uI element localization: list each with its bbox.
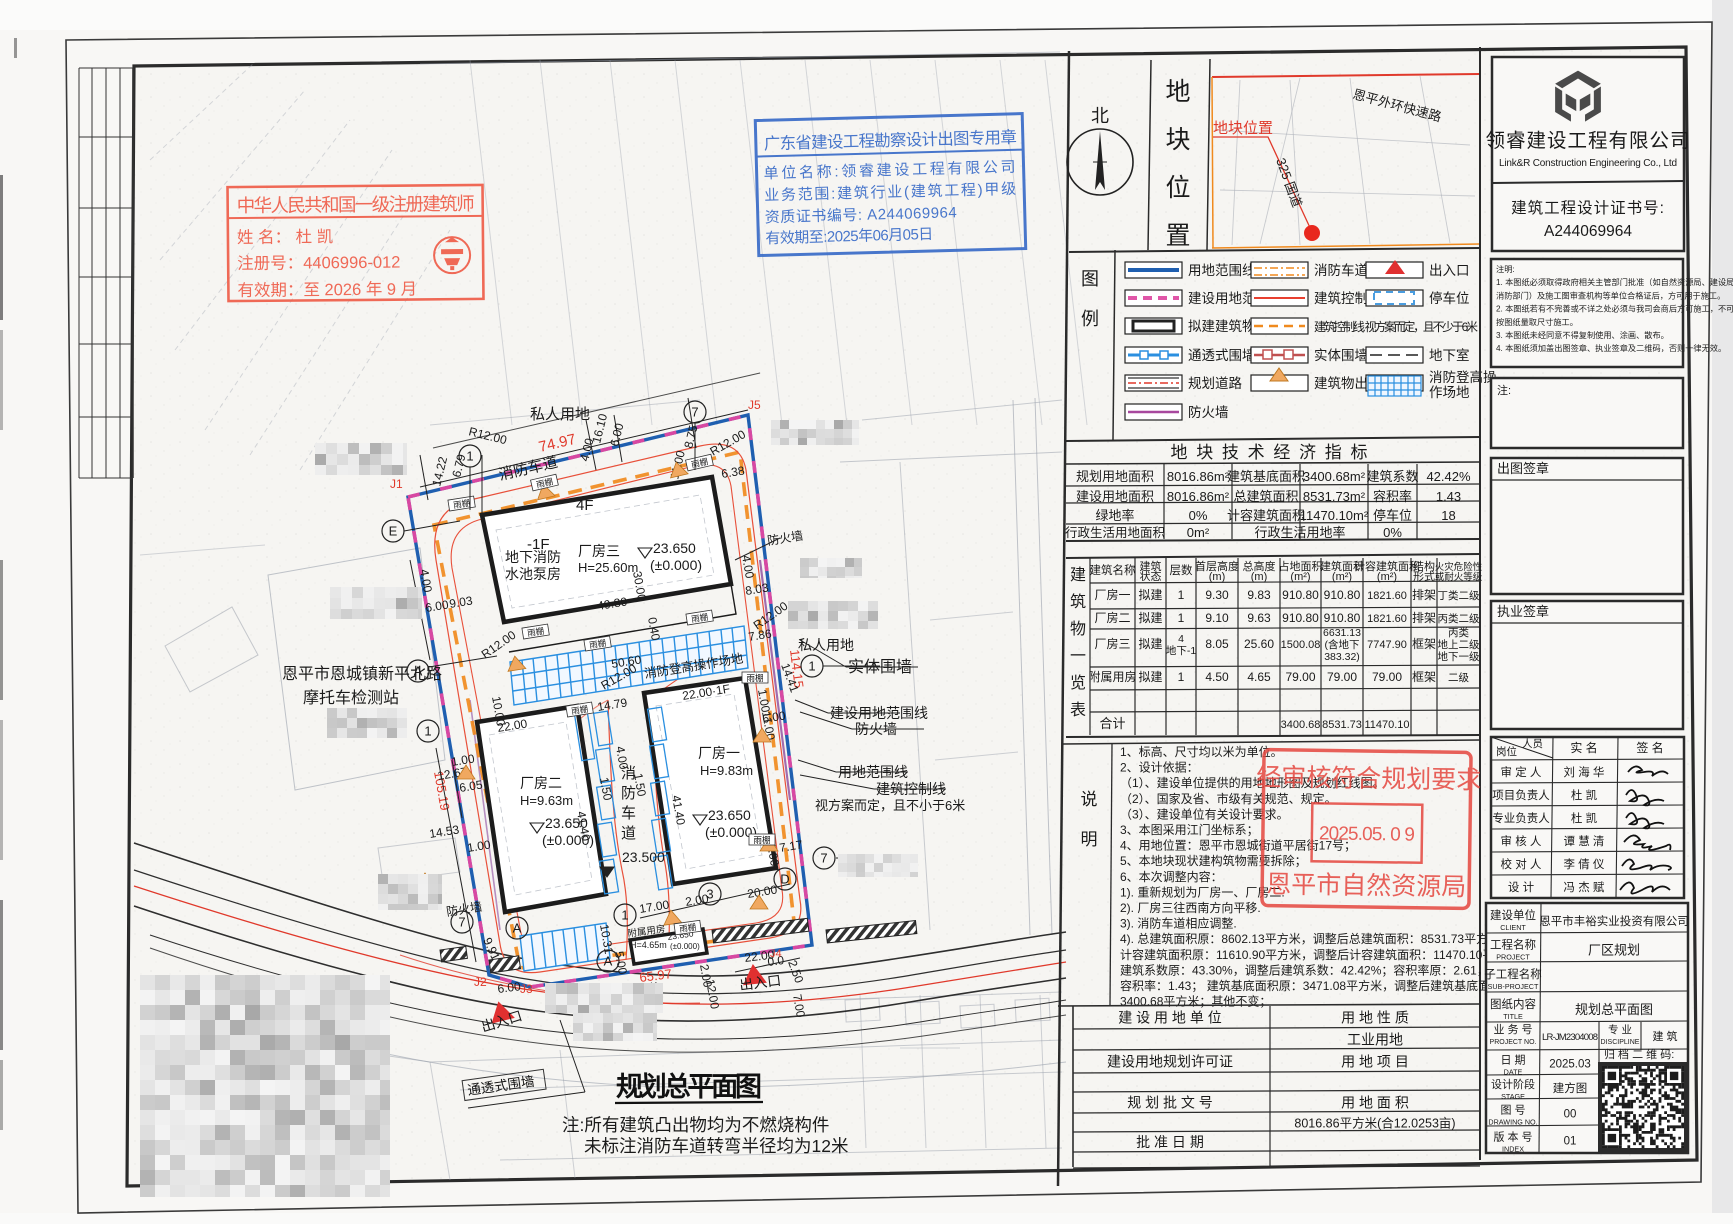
svg-text:总建筑面积: 总建筑面积 (1233, 489, 1298, 504)
svg-text:实 名: 实 名 (1570, 740, 1597, 755)
svg-text:7747.90: 7747.90 (1367, 639, 1407, 651)
svg-text:版 本 号: 版 本 号 (1493, 1130, 1532, 1144)
svg-text:地块位置: 地块位置 (1213, 120, 1273, 137)
svg-text:专业负责人: 专业负责人 (1492, 811, 1550, 825)
svg-text:6、本次调整内容：: 6、本次调整内容： (1120, 869, 1223, 884)
svg-text:7: 7 (820, 851, 827, 866)
svg-text:执业签章: 执业签章 (1497, 604, 1549, 619)
svg-text:5、本地块现状建构筑物需要拆除；: 5、本地块现状建构筑物需要拆除； (1120, 853, 1307, 868)
svg-text:J2: J2 (474, 975, 487, 989)
svg-text:工业用地: 工业用地 (1347, 1032, 1403, 1048)
svg-text:7: 7 (458, 915, 465, 930)
svg-text:摩托车检测站: 摩托车检测站 (303, 689, 399, 707)
svg-text:0%: 0% (1383, 525, 1402, 540)
svg-text:PROJECT NO.: PROJECT NO. (1490, 1039, 1537, 1046)
svg-text:79.00: 79.00 (1285, 670, 1315, 684)
svg-text:A: A (414, 664, 423, 679)
svg-text:383.32): 383.32) (1324, 651, 1360, 663)
svg-text:说: 说 (1081, 790, 1098, 809)
svg-text:79.00: 79.00 (1372, 670, 1402, 684)
svg-text:DISCIPLINE: DISCIPLINE (1601, 1039, 1640, 1046)
svg-text:状态: 状态 (1140, 569, 1162, 583)
svg-text:9.83: 9.83 (1247, 588, 1271, 602)
svg-text:框架: 框架 (1412, 670, 1436, 684)
svg-text:18: 18 (1441, 508, 1455, 523)
svg-text:3: 3 (706, 887, 713, 902)
svg-text:4). 总建筑面积原：8602.13平方米，调整后总建筑面积: 4). 总建筑面积原：8602.13平方米，调整后总建筑面积：8531.73平方… (1120, 931, 1512, 946)
svg-text:作场地: 作场地 (1429, 385, 1470, 400)
svg-text:出图签章: 出图签章 (1497, 461, 1549, 476)
svg-text:冯 杰 赋: 冯 杰 赋 (1564, 881, 1605, 894)
svg-text:8016.86m²: 8016.86m² (1167, 489, 1230, 504)
svg-text:建筑系数原：43.30%，调整后建筑系数：42.42%；容积: 建筑系数原：43.30%，调整后建筑系数：42.42%；容积率原：2.61，调整… (1120, 962, 1525, 977)
svg-text:规划总平面图: 规划总平面图 (616, 1072, 762, 1102)
svg-text:合计: 合计 (1099, 716, 1125, 731)
svg-text:校 对 人: 校 对 人 (1501, 857, 1542, 871)
svg-text:42.42%: 42.42% (1426, 469, 1471, 484)
svg-text:H=4.65m: H=4.65m (630, 940, 667, 950)
svg-text:实体围墙: 实体围墙 (1314, 348, 1368, 363)
svg-text:框架: 框架 (1412, 637, 1436, 651)
svg-text:地: 地 (1165, 78, 1190, 106)
svg-text:23.650: 23.650 (708, 807, 751, 823)
svg-text:排架: 排架 (1412, 611, 1436, 625)
svg-text:厂房二: 厂房二 (1094, 610, 1130, 625)
svg-text:览: 览 (1070, 674, 1086, 692)
svg-text:计容建筑面积原：11610.90平方米，调整后计容建筑面积：: 计容建筑面积原：11610.90平方米，调整后计容建筑面积：11470.10平方… (1120, 947, 1530, 962)
svg-text:A: A (513, 921, 522, 936)
svg-text:归 档 二 维 码:: 归 档 二 维 码: (1604, 1047, 1674, 1061)
svg-text:9.30: 9.30 (1205, 588, 1229, 602)
svg-text:建 筑: 建 筑 (1652, 1029, 1677, 1043)
svg-text:地 块 技 术 经 济 指 标: 地 块 技 术 经 济 指 标 (1170, 443, 1369, 462)
svg-text:建: 建 (1070, 566, 1086, 584)
svg-text:规划用地面积: 规划用地面积 (1076, 469, 1154, 484)
svg-text:8531.73m²: 8531.73m² (1303, 489, 1366, 504)
svg-text:项目负责人: 项目负责人 (1492, 788, 1550, 802)
svg-text:明: 明 (1081, 830, 1098, 849)
svg-text:建设用地面积: 建设用地面积 (1076, 489, 1154, 504)
svg-text:(±0.000): (±0.000) (542, 832, 594, 848)
svg-text:J3: J3 (520, 982, 533, 996)
svg-text:形式: 形式 (1413, 570, 1435, 583)
svg-text:谭 慧 清: 谭 慧 清 (1564, 834, 1605, 848)
svg-text:PROJECT: PROJECT (1496, 953, 1530, 962)
svg-text:4. 本图纸须加盖出图签章、执业签章及二维码，否则一律无效。: 4. 本图纸须加盖出图签章、执业签章及二维码，否则一律无效。 (1496, 343, 1726, 353)
svg-text:专 业: 专 业 (1608, 1023, 1632, 1036)
svg-text:工程名称: 工程名称 (1490, 938, 1536, 952)
svg-text:3. 本图纸未经同意不得复制使用、涂画、散布。: 3. 本图纸未经同意不得复制使用、涂画、散布。 (1496, 330, 1669, 340)
svg-text:910.80: 910.80 (1324, 611, 1361, 625)
svg-text:岗位: 岗位 (1496, 745, 1518, 758)
svg-text:停车位: 停车位 (1373, 508, 1412, 523)
svg-text:TITLE: TITLE (1503, 1012, 1523, 1021)
svg-text:1.43: 1.43 (1436, 489, 1461, 504)
svg-text:经审核符合规划要求: 经审核符合规划要求 (1256, 763, 1481, 794)
svg-text:厂房三: 厂房三 (1094, 636, 1130, 651)
svg-text:8.05: 8.05 (1205, 637, 1229, 651)
svg-text:恩平市丰裕实业投资有限公司: 恩平市丰裕实业投资有限公司 (1539, 914, 1689, 928)
svg-text:1. 本图纸必须取得政府相关主管部门批准（如自然资源局、建设: 1. 本图纸必须取得政府相关主管部门批准（如自然资源局、建设局 (1496, 277, 1733, 287)
svg-text:SUB-PROJECT: SUB-PROJECT (1488, 982, 1539, 991)
svg-text:2、设计依据：: 2、设计依据： (1120, 760, 1199, 775)
svg-text:注:: 注: (1497, 383, 1511, 397)
svg-text:1: 1 (424, 724, 431, 739)
svg-text:视方案而定，且不小于6米: 视方案而定，且不小于6米 (815, 798, 965, 813)
svg-text:(±0.000): (±0.000) (670, 942, 700, 951)
svg-text:子工程名称: 子工程名称 (1484, 967, 1542, 981)
svg-text:丙类: 丙类 (1448, 626, 1470, 639)
svg-text:车: 车 (621, 805, 636, 822)
svg-text:审 定 人: 审 定 人 (1501, 765, 1542, 779)
svg-text:(m): (m) (1209, 571, 1226, 583)
svg-text:1821.60: 1821.60 (1367, 590, 1407, 602)
svg-text:建筑基底面积: 建筑基底面积 (1227, 469, 1305, 484)
svg-text:(含地下: (含地下 (1325, 638, 1360, 651)
svg-text:行政生活用地率: 行政生活用地率 (1254, 525, 1345, 540)
svg-text:图: 图 (1081, 269, 1099, 289)
svg-text:拟建: 拟建 (1138, 670, 1162, 684)
svg-text:消防部门）及施工图审查机构等单位合格证后，方可用于施工。: 消防部门）及施工图审查机构等单位合格证后，方可用于施工。 (1496, 290, 1725, 300)
svg-text:4.50: 4.50 (1205, 670, 1229, 684)
svg-text:A244069964: A244069964 (1544, 223, 1632, 240)
svg-text:2). 厂房三往西南方向平移.: 2). 厂房三往西南方向平移. (1120, 900, 1261, 915)
svg-text:3400.68: 3400.68 (1281, 719, 1321, 731)
svg-text:地下一级: 地下一级 (1438, 650, 1480, 663)
svg-text:防: 防 (621, 785, 636, 802)
svg-text:910.80: 910.80 (1282, 611, 1319, 625)
svg-text:消防车道: 消防车道 (1314, 262, 1368, 278)
svg-text:业 务 号: 业 务 号 (1493, 1023, 1532, 1036)
svg-text:23.650: 23.650 (545, 815, 588, 831)
svg-text:日 期: 日 期 (1500, 1054, 1525, 1067)
svg-text:建筑控制线. 视方案而定，且不少于6米: 建筑控制线. 视方案而定，且不少于6米 (1314, 319, 1478, 334)
svg-text:H=25.60m: H=25.60m (578, 560, 638, 575)
svg-text:01: 01 (1564, 1136, 1577, 1148)
svg-text:00: 00 (1564, 1109, 1577, 1121)
svg-text:未标注消防车道转弯半径均为12米: 未标注消防车道转弯半径均为12米 (584, 1136, 848, 1156)
svg-text:3). 消防车道相应调整.: 3). 消防车道相应调整. (1120, 916, 1237, 931)
svg-text:一: 一 (1070, 648, 1086, 665)
svg-text:(m): (m) (1251, 571, 1268, 583)
svg-text:4: 4 (1178, 633, 1184, 645)
svg-text:地下室: 地下室 (1429, 347, 1470, 363)
svg-text:79.00: 79.00 (1327, 670, 1357, 684)
svg-text:2025.03: 2025.03 (1549, 1059, 1591, 1071)
svg-text:雨棚: 雨棚 (753, 835, 770, 845)
svg-text:拟建: 拟建 (1138, 611, 1162, 625)
svg-text:丙类二级: 丙类二级 (1438, 612, 1480, 625)
svg-text:地上二级: 地上二级 (1438, 638, 1480, 651)
svg-text:行政生活用地面积: 行政生活用地面积 (1065, 526, 1165, 540)
svg-text:层数: 层数 (1170, 563, 1193, 577)
svg-text:图纸内容: 图纸内容 (1490, 997, 1536, 1011)
svg-text:规划道路: 规划道路 (1188, 376, 1242, 391)
svg-text:1: 1 (808, 659, 815, 674)
svg-text:消: 消 (621, 765, 636, 782)
svg-text:容积率：1.43； 建筑基底面积原：3471.08平方米，: 容积率：1.43； 建筑基底面积原：3471.08平方米，调整后建筑基底面积： (1120, 978, 1514, 993)
svg-text:1821.60: 1821.60 (1367, 613, 1407, 625)
svg-text:按图纸量取尺寸施工。: 按图纸量取尺寸施工。 (1496, 317, 1578, 327)
svg-text:拟建: 拟建 (1138, 637, 1162, 651)
svg-text:1、标高、尺寸均以米为单位。: 1、标高、尺寸均以米为单位。 (1120, 744, 1283, 759)
svg-text:雨棚: 雨棚 (746, 673, 763, 683)
svg-text:计容建筑面积: 计容建筑面积 (1227, 508, 1305, 523)
svg-text:建筑名称: 建筑名称 (1090, 563, 1136, 577)
svg-text:人员: 人员 (1522, 738, 1543, 750)
svg-text:DATE: DATE (1504, 1068, 1523, 1077)
svg-text:物: 物 (1070, 620, 1086, 638)
svg-text:规 划 批 文 号: 规 划 批 文 号 (1127, 1095, 1213, 1111)
svg-text:A: A (604, 954, 613, 969)
svg-text:块: 块 (1165, 126, 1190, 154)
svg-text:11470.10m²: 11470.10m² (1300, 508, 1369, 523)
svg-text:0%: 0% (1189, 508, 1208, 523)
svg-text:1: 1 (621, 908, 628, 923)
svg-text:910.80: 910.80 (1324, 588, 1361, 602)
svg-text:11470.10: 11470.10 (1364, 719, 1409, 731)
svg-text:表: 表 (1070, 701, 1086, 719)
svg-text:厂房三: 厂房三 (578, 543, 620, 559)
svg-text:1500.08: 1500.08 (1281, 639, 1321, 651)
svg-text:地下-1: 地下-1 (1166, 644, 1196, 657)
svg-text:9.63: 9.63 (1247, 611, 1271, 625)
svg-text:私人用地: 私人用地 (530, 406, 590, 423)
svg-text:3、本图采用江门坐标系；: 3、本图采用江门坐标系； (1120, 822, 1259, 837)
svg-text:(m²): (m²) (1290, 571, 1310, 583)
svg-text:2025.05. 0 9: 2025.05. 0 9 (1319, 823, 1415, 845)
svg-text:23.650: 23.650 (653, 540, 696, 556)
svg-text:Link&R Construction Engineerin: Link&R Construction Engineering Co., Ltd (1499, 158, 1677, 169)
svg-text:用地范围线: 用地范围线 (1188, 263, 1256, 278)
svg-text:建设单位: 建设单位 (1490, 908, 1536, 922)
svg-text:李 倩 仪: 李 倩 仪 (1564, 857, 1605, 871)
svg-text:拟建: 拟建 (1138, 588, 1162, 602)
svg-text:丁类二级: 丁类二级 (1438, 589, 1480, 602)
svg-text:6.00: 6.00 (497, 979, 522, 996)
svg-text:4.65: 4.65 (1247, 670, 1271, 684)
svg-text:(±0.000): (±0.000) (650, 557, 702, 573)
svg-text:J1: J1 (390, 477, 403, 491)
svg-text:建 设 用 地 单 位: 建 设 用 地 单 位 (1118, 1010, 1221, 1026)
svg-text:通透式围墙: 通透式围墙 (1188, 348, 1256, 363)
svg-text:0m²: 0m² (1187, 525, 1210, 540)
svg-text:有效期：至 2026 年 9 月: 有效期：至 2026 年 9 月 (237, 279, 417, 300)
svg-text:用 地 性 质: 用 地 性 质 (1341, 1010, 1409, 1026)
svg-text:容积率: 容积率 (1373, 489, 1412, 504)
svg-text:建筑系数: 建筑系数 (1366, 469, 1418, 484)
svg-text:姓 名： 杜 凯: 姓 名： 杜 凯 (237, 227, 333, 247)
svg-text:二级: 二级 (1448, 672, 1470, 684)
svg-text:1: 1 (1178, 611, 1185, 625)
svg-text:签 名: 签 名 (1636, 740, 1663, 755)
svg-text:H=9.83m: H=9.83m (700, 763, 753, 778)
svg-text:建设用地规划许可证: 建设用地规划许可证 (1107, 1054, 1233, 1070)
svg-text:25.60: 25.60 (1244, 637, 1274, 651)
svg-text:图 号: 图 号 (1500, 1104, 1525, 1117)
svg-text:消防登高操: 消防登高操 (1429, 369, 1497, 385)
svg-text:H=9.63m: H=9.63m (520, 793, 573, 808)
svg-text:(m²): (m²) (1377, 571, 1397, 583)
svg-text:DRAWING NO.: DRAWING NO. (1488, 1118, 1537, 1127)
svg-text:D: D (780, 872, 789, 887)
svg-text:建方图: 建方图 (1553, 1081, 1588, 1095)
svg-text:或耐火等级: 或耐火等级 (1435, 571, 1483, 583)
svg-text:杜 凯: 杜 凯 (1571, 788, 1598, 802)
svg-text:用 地 项 目: 用 地 项 目 (1341, 1054, 1409, 1070)
svg-text:8531.73: 8531.73 (1322, 719, 1362, 731)
svg-text:（2）、国家及省、市级有关规范、规定。: （2）、国家及省、市级有关规范、规定。 (1120, 791, 1337, 806)
svg-text:STAGE: STAGE (1501, 1092, 1525, 1101)
svg-text:注册号：4406996-012: 注册号：4406996-012 (237, 253, 400, 273)
svg-text:注:所有建筑凸出物均为不燃烧构件: 注:所有建筑凸出物均为不燃烧构件 (562, 1115, 829, 1135)
svg-text:绿地率: 绿地率 (1095, 508, 1134, 523)
svg-text:规划总平面图: 规划总平面图 (1575, 1002, 1653, 1017)
svg-text:厂区规划: 厂区规划 (1588, 943, 1640, 958)
svg-text:例: 例 (1081, 309, 1099, 329)
svg-text:LR-JM2304008: LR-JM2304008 (1542, 1032, 1598, 1043)
svg-text:1: 1 (466, 449, 473, 464)
svg-text:1: 1 (1178, 670, 1185, 684)
svg-text:批 准 日 期: 批 准 日 期 (1136, 1134, 1204, 1150)
svg-text:恩平市自然资源局: 恩平市自然资源局 (1266, 871, 1466, 902)
svg-text:CLIENT: CLIENT (1500, 923, 1526, 932)
svg-text:北: 北 (1091, 106, 1109, 126)
svg-text:1: 1 (1178, 588, 1185, 602)
svg-text:2. 本图纸若有不完善或不详之处必须与我司会商后方可施工，不: 2. 本图纸若有不完善或不详之处必须与我司会商后方可施工，不可 (1496, 304, 1733, 314)
svg-text:置: 置 (1165, 222, 1190, 250)
svg-text:厂房一: 厂房一 (698, 745, 740, 761)
svg-text:排架: 排架 (1412, 588, 1436, 602)
svg-text:拟建建筑物: 拟建建筑物 (1188, 319, 1256, 334)
svg-text:水池泵房: 水池泵房 (505, 566, 561, 582)
svg-text:筑: 筑 (1070, 593, 1086, 611)
svg-text:J5: J5 (748, 398, 761, 412)
svg-text:位: 位 (1165, 174, 1190, 202)
svg-text:私人用地: 私人用地 (798, 637, 854, 653)
svg-text:9.10: 9.10 (1205, 611, 1229, 625)
svg-text:设 计: 设 计 (1508, 881, 1535, 894)
svg-text:出入口: 出入口 (1429, 263, 1470, 278)
svg-text:4F: 4F (576, 497, 594, 514)
svg-text:8016.86m²: 8016.86m² (1167, 469, 1230, 484)
svg-text:刘 海 华: 刘 海 华 (1564, 765, 1605, 779)
svg-text:停车位: 停车位 (1429, 290, 1470, 306)
svg-text:审 核 人: 审 核 人 (1501, 834, 1542, 848)
svg-text:用 地 面 积: 用 地 面 积 (1341, 1095, 1409, 1111)
svg-text:23.500: 23.500 (622, 849, 665, 865)
svg-text:3400.68m²: 3400.68m² (1303, 469, 1366, 484)
svg-text:道: 道 (621, 825, 636, 842)
svg-text:1). 重新规划为厂房一、厂房二.: 1). 重新规划为厂房一、厂房二. (1120, 884, 1285, 899)
svg-text:8016.86平方米(合12.0253亩): 8016.86平方米(合12.0253亩) (1294, 1116, 1455, 1131)
svg-text:注明:: 注明: (1496, 264, 1515, 274)
svg-text:建筑工程设计证书号:: 建筑工程设计证书号: (1511, 199, 1665, 217)
svg-text:领睿建设工程有限公司: 领睿建设工程有限公司 (1485, 130, 1690, 152)
svg-text:杜 凯: 杜 凯 (1571, 811, 1598, 825)
svg-text:厂房二: 厂房二 (520, 775, 562, 791)
svg-text:防火墙: 防火墙 (1188, 405, 1229, 420)
svg-text:J4: J4 (770, 948, 782, 960)
svg-text:(m²): (m²) (1332, 571, 1352, 583)
svg-text:E: E (389, 524, 398, 539)
svg-text:INDEX: INDEX (1502, 1145, 1524, 1154)
svg-text:地下消防: 地下消防 (505, 549, 561, 565)
svg-text:7: 7 (691, 405, 698, 420)
svg-text:附属用房: 附属用房 (1088, 669, 1136, 684)
svg-text:设计阶段: 设计阶段 (1491, 1077, 1535, 1091)
svg-text:厂房一: 厂房一 (1094, 587, 1130, 602)
svg-text:910.80: 910.80 (1282, 588, 1319, 602)
svg-text:6631.13: 6631.13 (1323, 627, 1361, 639)
svg-text:中华人民共和国一级注册建筑师: 中华人民共和国一级注册建筑师 (237, 193, 475, 216)
